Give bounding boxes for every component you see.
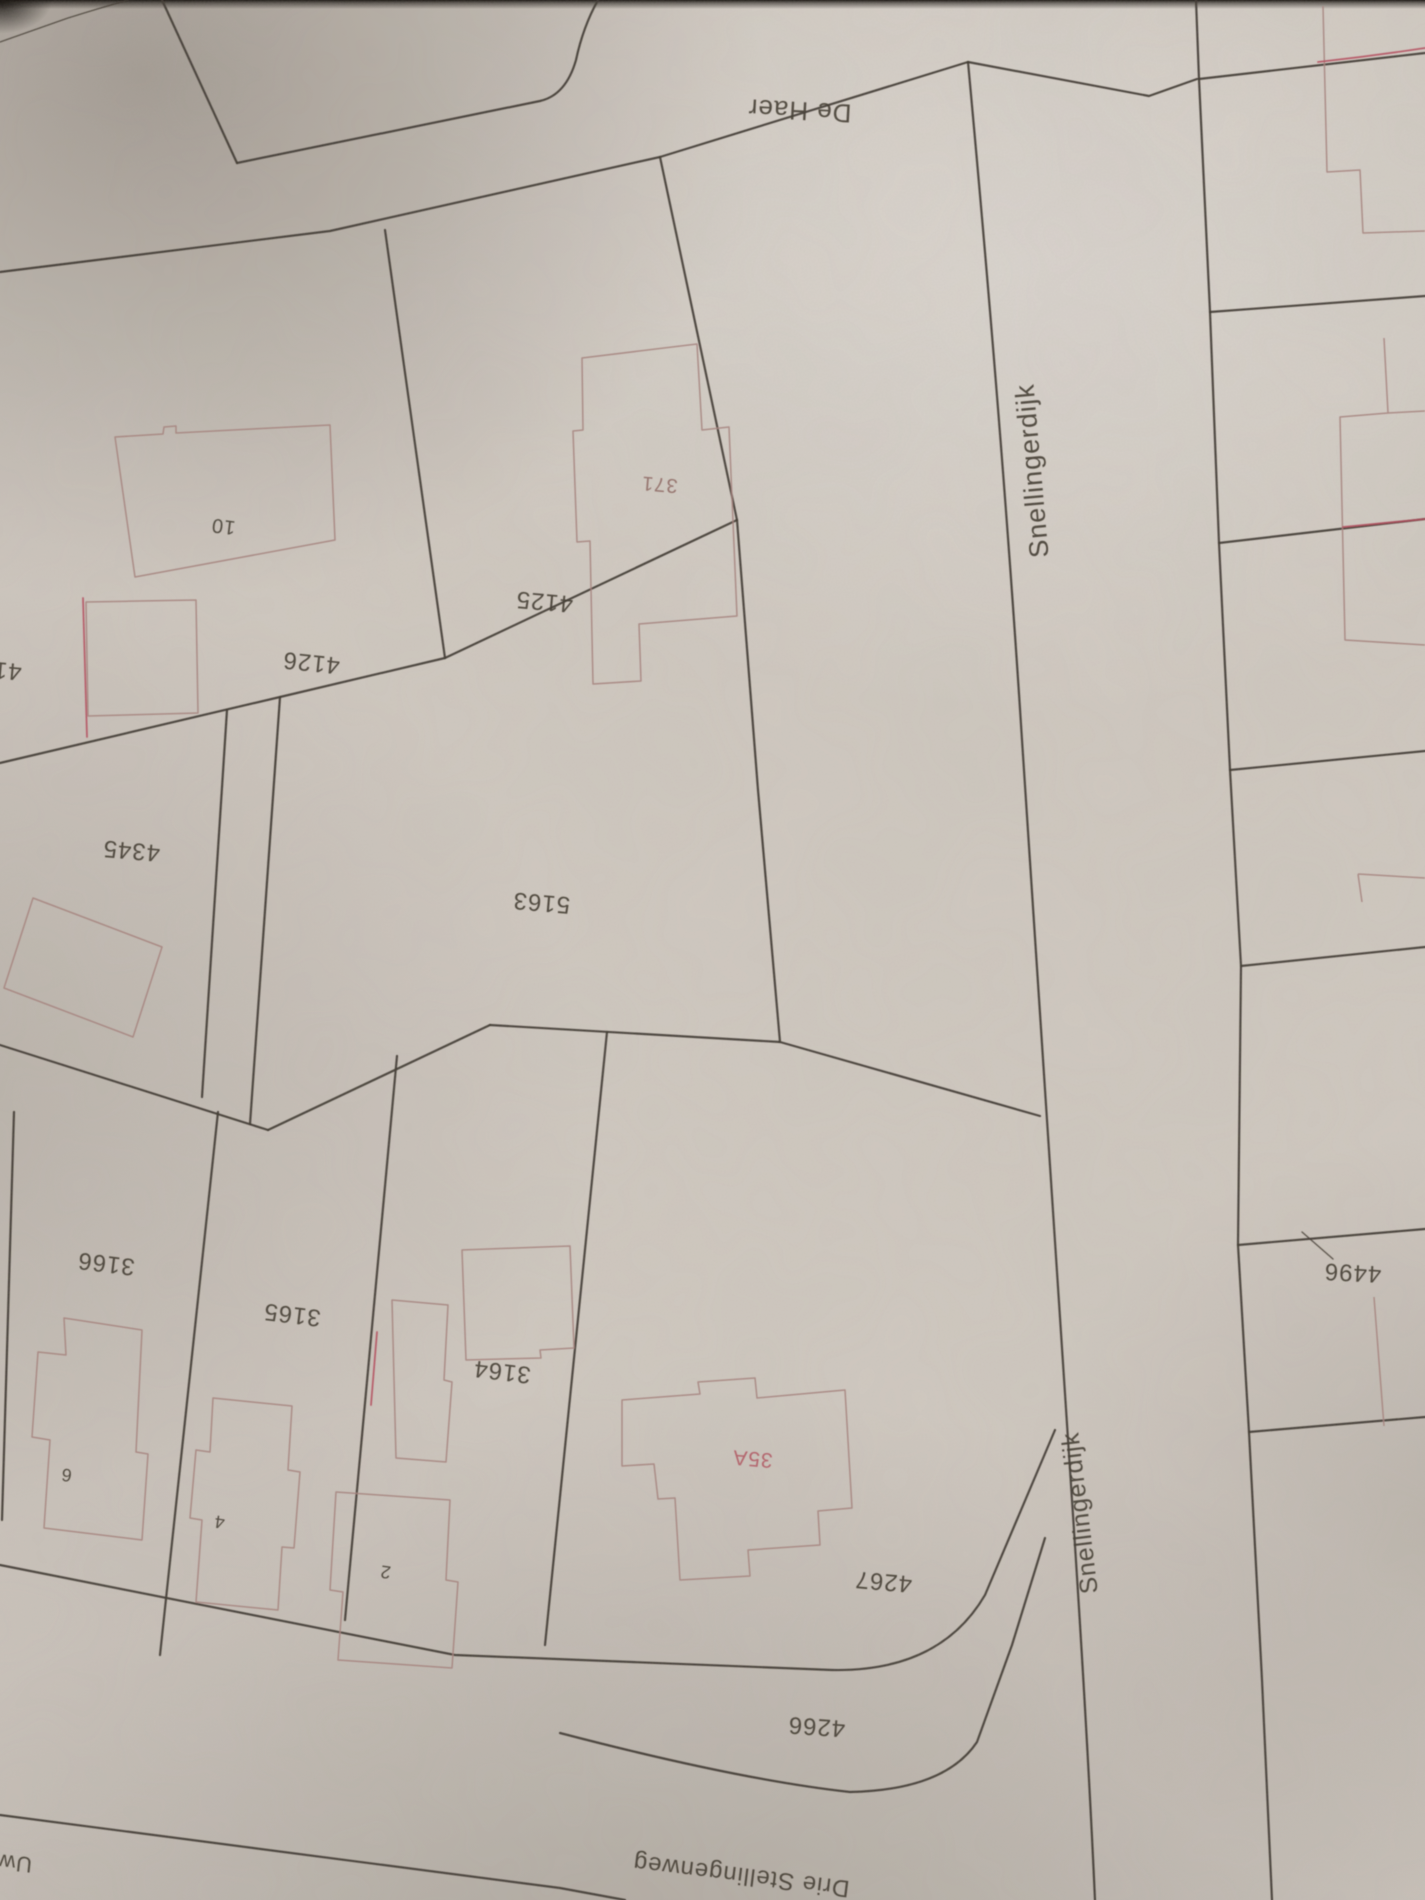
paper-grain-texture <box>0 0 1425 1900</box>
cadastral-map: De HaerSnellingerdijkSnellingerdijkDrie … <box>0 0 1425 1900</box>
cadastral-map-photo: De HaerSnellingerdijkSnellingerdijkDrie … <box>0 0 1425 1900</box>
